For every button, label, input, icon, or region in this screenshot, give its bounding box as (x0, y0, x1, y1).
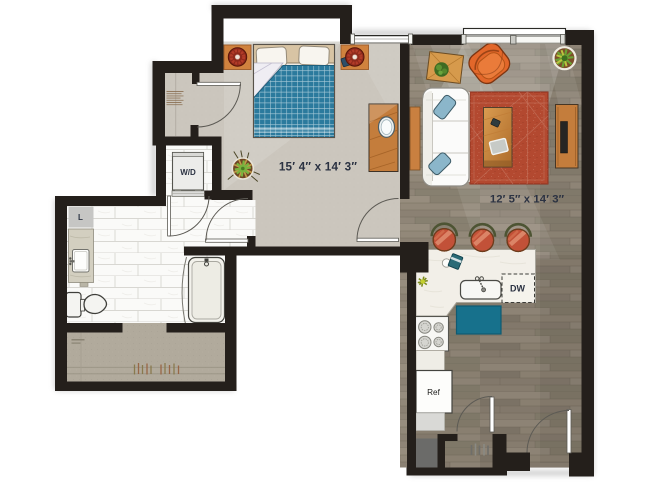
svg-text:12′ 5″ x 14′ 3″: 12′ 5″ x 14′ 3″ (490, 194, 565, 206)
svg-text:W/D: W/D (180, 168, 196, 177)
svg-text:Ref: Ref (427, 388, 440, 397)
svg-text:L: L (78, 213, 83, 222)
svg-text:15′ 4″ x 14′ 3″: 15′ 4″ x 14′ 3″ (279, 161, 357, 174)
svg-text:DW: DW (510, 284, 525, 294)
